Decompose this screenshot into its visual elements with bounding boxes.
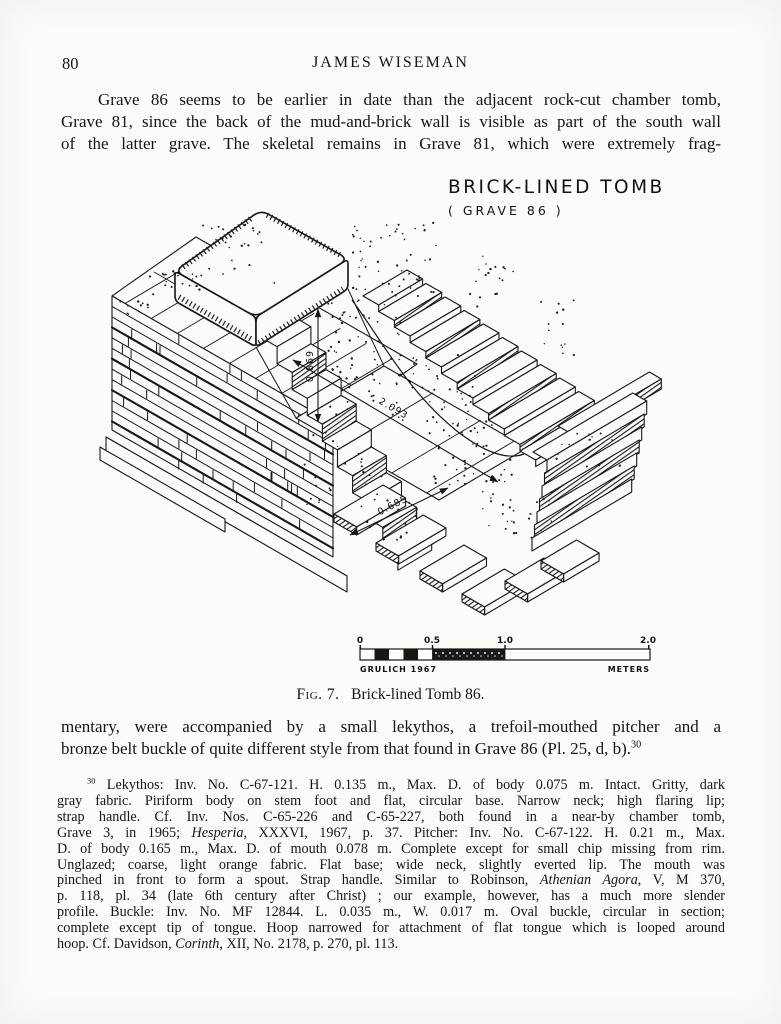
scale-tick-20: 2.0 [640, 636, 656, 646]
running-head-author: JAMES WISEMAN [0, 54, 781, 72]
figure-caption-text: Brick-lined Tomb 86. [351, 686, 484, 703]
text-line: D. of body 0.165 m., Max. D. of mouth 0.… [57, 842, 725, 858]
text-line: of the latter grave. The skeletal remain… [61, 133, 721, 155]
text-line: Unglazed; coarse, light orange fabric. F… [57, 858, 725, 874]
figure-7: BRICK-LINED TOMB ( GRAVE 86 ) 0.869 2.09… [85, 170, 670, 675]
body-paragraph-2: mentary, were accompanied by a small lek… [61, 716, 721, 760]
dimension-depth-label: 0.869 [305, 350, 316, 382]
text-line: bronze belt buckle of quite different st… [61, 738, 721, 760]
text-line: pinched in front to form a spout. Strap … [57, 873, 725, 889]
tomb-drawing: BRICK-LINED TOMB ( GRAVE 86 ) 0.869 2.09… [85, 170, 670, 675]
text-line: Grave 81, since the back of the mud-and-… [61, 111, 721, 133]
journal-page: 80 JAMES WISEMAN Grave 86 seems to be ea… [0, 0, 781, 1024]
text-line: strap handle. Cf. Inv. Nos. C-65-226 and… [57, 810, 725, 826]
text-line: gray fabric. Piriform body on stem foot … [57, 794, 725, 810]
figure-title: BRICK-LINED TOMB [448, 177, 665, 198]
scale-credit: GRULICH 1967 [360, 665, 437, 674]
scale-speckled-segment [433, 650, 506, 660]
scale-unit-label: METERS [608, 665, 650, 674]
text-line: complete except tip of tongue. Hoop narr… [57, 921, 725, 937]
text-line: 30 Lekythos: Inv. No. C-67-121. H. 0.135… [57, 778, 725, 794]
figure-caption: Fig. 7. Brick-lined Tomb 86. [0, 686, 781, 704]
figure-caption-label: Fig. 7. [296, 686, 339, 703]
text-line: mentary, were accompanied by a small lek… [61, 716, 721, 738]
text-line: Grave 86 seems to be earlier in date tha… [61, 89, 721, 111]
scale-tick-0: 0 [357, 636, 363, 646]
figure-subtitle: ( GRAVE 86 ) [448, 203, 564, 218]
body-paragraph-1: Grave 86 seems to be earlier in date tha… [61, 89, 721, 155]
text-line: profile. Buckle: Inv. No. MF 12844. L. 0… [57, 905, 725, 921]
scale-black-segment [404, 650, 419, 660]
text-line: hoop. Cf. Davidson, Corinth, XII, No. 21… [57, 937, 725, 953]
footnote-30: 30 Lekythos: Inv. No. C-67-121. H. 0.135… [57, 778, 725, 953]
scale-tick-10: 1.0 [497, 636, 513, 646]
text-line: p. 118, pl. 34 (late 6th century after C… [57, 889, 725, 905]
scale-bar: 0 0.5 1.0 2.0 GRULICH 1967 METERS [357, 636, 656, 674]
text-line: Grave 3, in 1965; Hesperia, XXXVI, 1967,… [57, 826, 725, 842]
scale-black-segment [375, 650, 390, 660]
scale-tick-05: 0.5 [424, 636, 440, 646]
